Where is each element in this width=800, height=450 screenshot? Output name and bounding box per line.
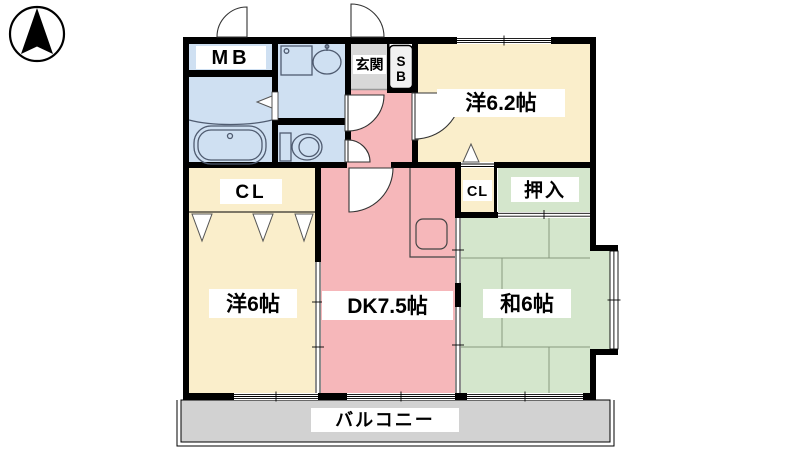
- wall-top-left: [183, 37, 457, 44]
- entrance-door-swing: [351, 4, 384, 37]
- wall-left: [183, 37, 189, 400]
- label-dk: DK7.5帖: [347, 295, 428, 318]
- wall-top-right: [551, 37, 596, 44]
- wall-washroom-toilet: [278, 118, 345, 125]
- label-cl-small: CL: [467, 184, 488, 200]
- label-western62: 洋6.2帖: [465, 91, 536, 115]
- window-western6-balcony: [234, 392, 318, 402]
- window-washitsu-balcony: [467, 392, 583, 402]
- floor-plan: MB 玄関 S B 洋6.2帖 CL CL 押入 洋6帖 DK7.5帖 和6帖 …: [0, 0, 800, 450]
- label-genkan: 玄関: [356, 57, 384, 73]
- mb-door-swing: [217, 7, 247, 37]
- wall-bottom: [183, 393, 234, 400]
- bay-window-fill: [590, 251, 610, 349]
- wall-closet-oshiire: [494, 168, 497, 212]
- wall-dk-closet-small: [455, 162, 461, 218]
- wall-closet-small-bottom: [455, 212, 498, 218]
- bay-window-stub-top: [590, 245, 618, 251]
- window-western62-top: [457, 36, 551, 46]
- wall-dk-top: [391, 162, 461, 168]
- window-dk-balcony: [347, 392, 455, 402]
- wall-washroom-genkan: [345, 37, 351, 95]
- label-balcony: バルコニー: [335, 410, 435, 430]
- label-oshiire: 押入: [524, 179, 566, 202]
- wall-closet-dk: [315, 162, 321, 262]
- label-western6: 洋6帖: [226, 292, 280, 316]
- wall-hall-western62-lower: [412, 140, 418, 168]
- north-arrow-icon: [10, 7, 64, 61]
- wall-mb-bath: [189, 70, 272, 77]
- wall-bath-closet: [183, 162, 347, 168]
- wall-bottom: [318, 393, 347, 400]
- floor-plan-page: MB 玄関 S B 洋6.2帖 CL CL 押入 洋6帖 DK7.5帖 和6帖 …: [0, 0, 800, 450]
- label-sb-bottom: B: [396, 69, 406, 84]
- label-mb: MB: [211, 47, 250, 69]
- label-cl-main: CL: [235, 182, 266, 203]
- room-dk-fill: [321, 168, 455, 393]
- label-sb-top: S: [396, 54, 405, 69]
- wall-dk-washitsu-post: [455, 283, 461, 307]
- wall-bottom: [455, 393, 467, 400]
- wall-bottom: [583, 393, 596, 400]
- wall-western62-bottom: [494, 162, 596, 168]
- wall-hall-segment: [345, 131, 351, 140]
- wall-right-upper: [590, 37, 596, 245]
- bay-window-stub-bottom: [590, 349, 618, 355]
- label-washitsu: 和6帖: [500, 293, 554, 316]
- hall-dk-opening-fill: [347, 162, 391, 168]
